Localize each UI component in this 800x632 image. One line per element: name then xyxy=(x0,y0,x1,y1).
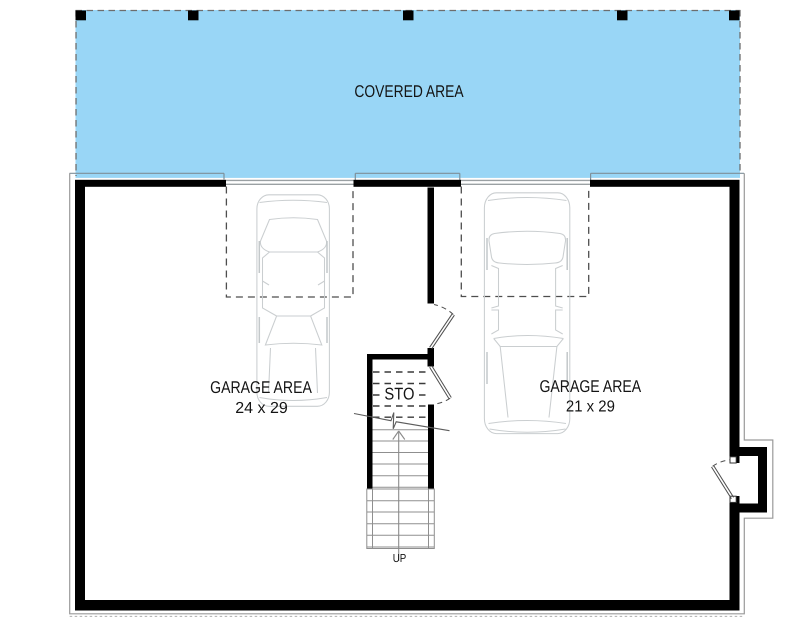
svg-text:STO: STO xyxy=(384,384,414,403)
svg-text:UP: UP xyxy=(393,552,407,565)
svg-text:COVERED AREA: COVERED AREA xyxy=(354,82,464,101)
svg-text:GARAGE AREA: GARAGE AREA xyxy=(210,378,312,397)
svg-text:21 x 29: 21 x 29 xyxy=(566,398,615,415)
svg-text:GARAGE AREA: GARAGE AREA xyxy=(539,377,641,396)
svg-text:24 x 29: 24 x 29 xyxy=(235,400,288,417)
